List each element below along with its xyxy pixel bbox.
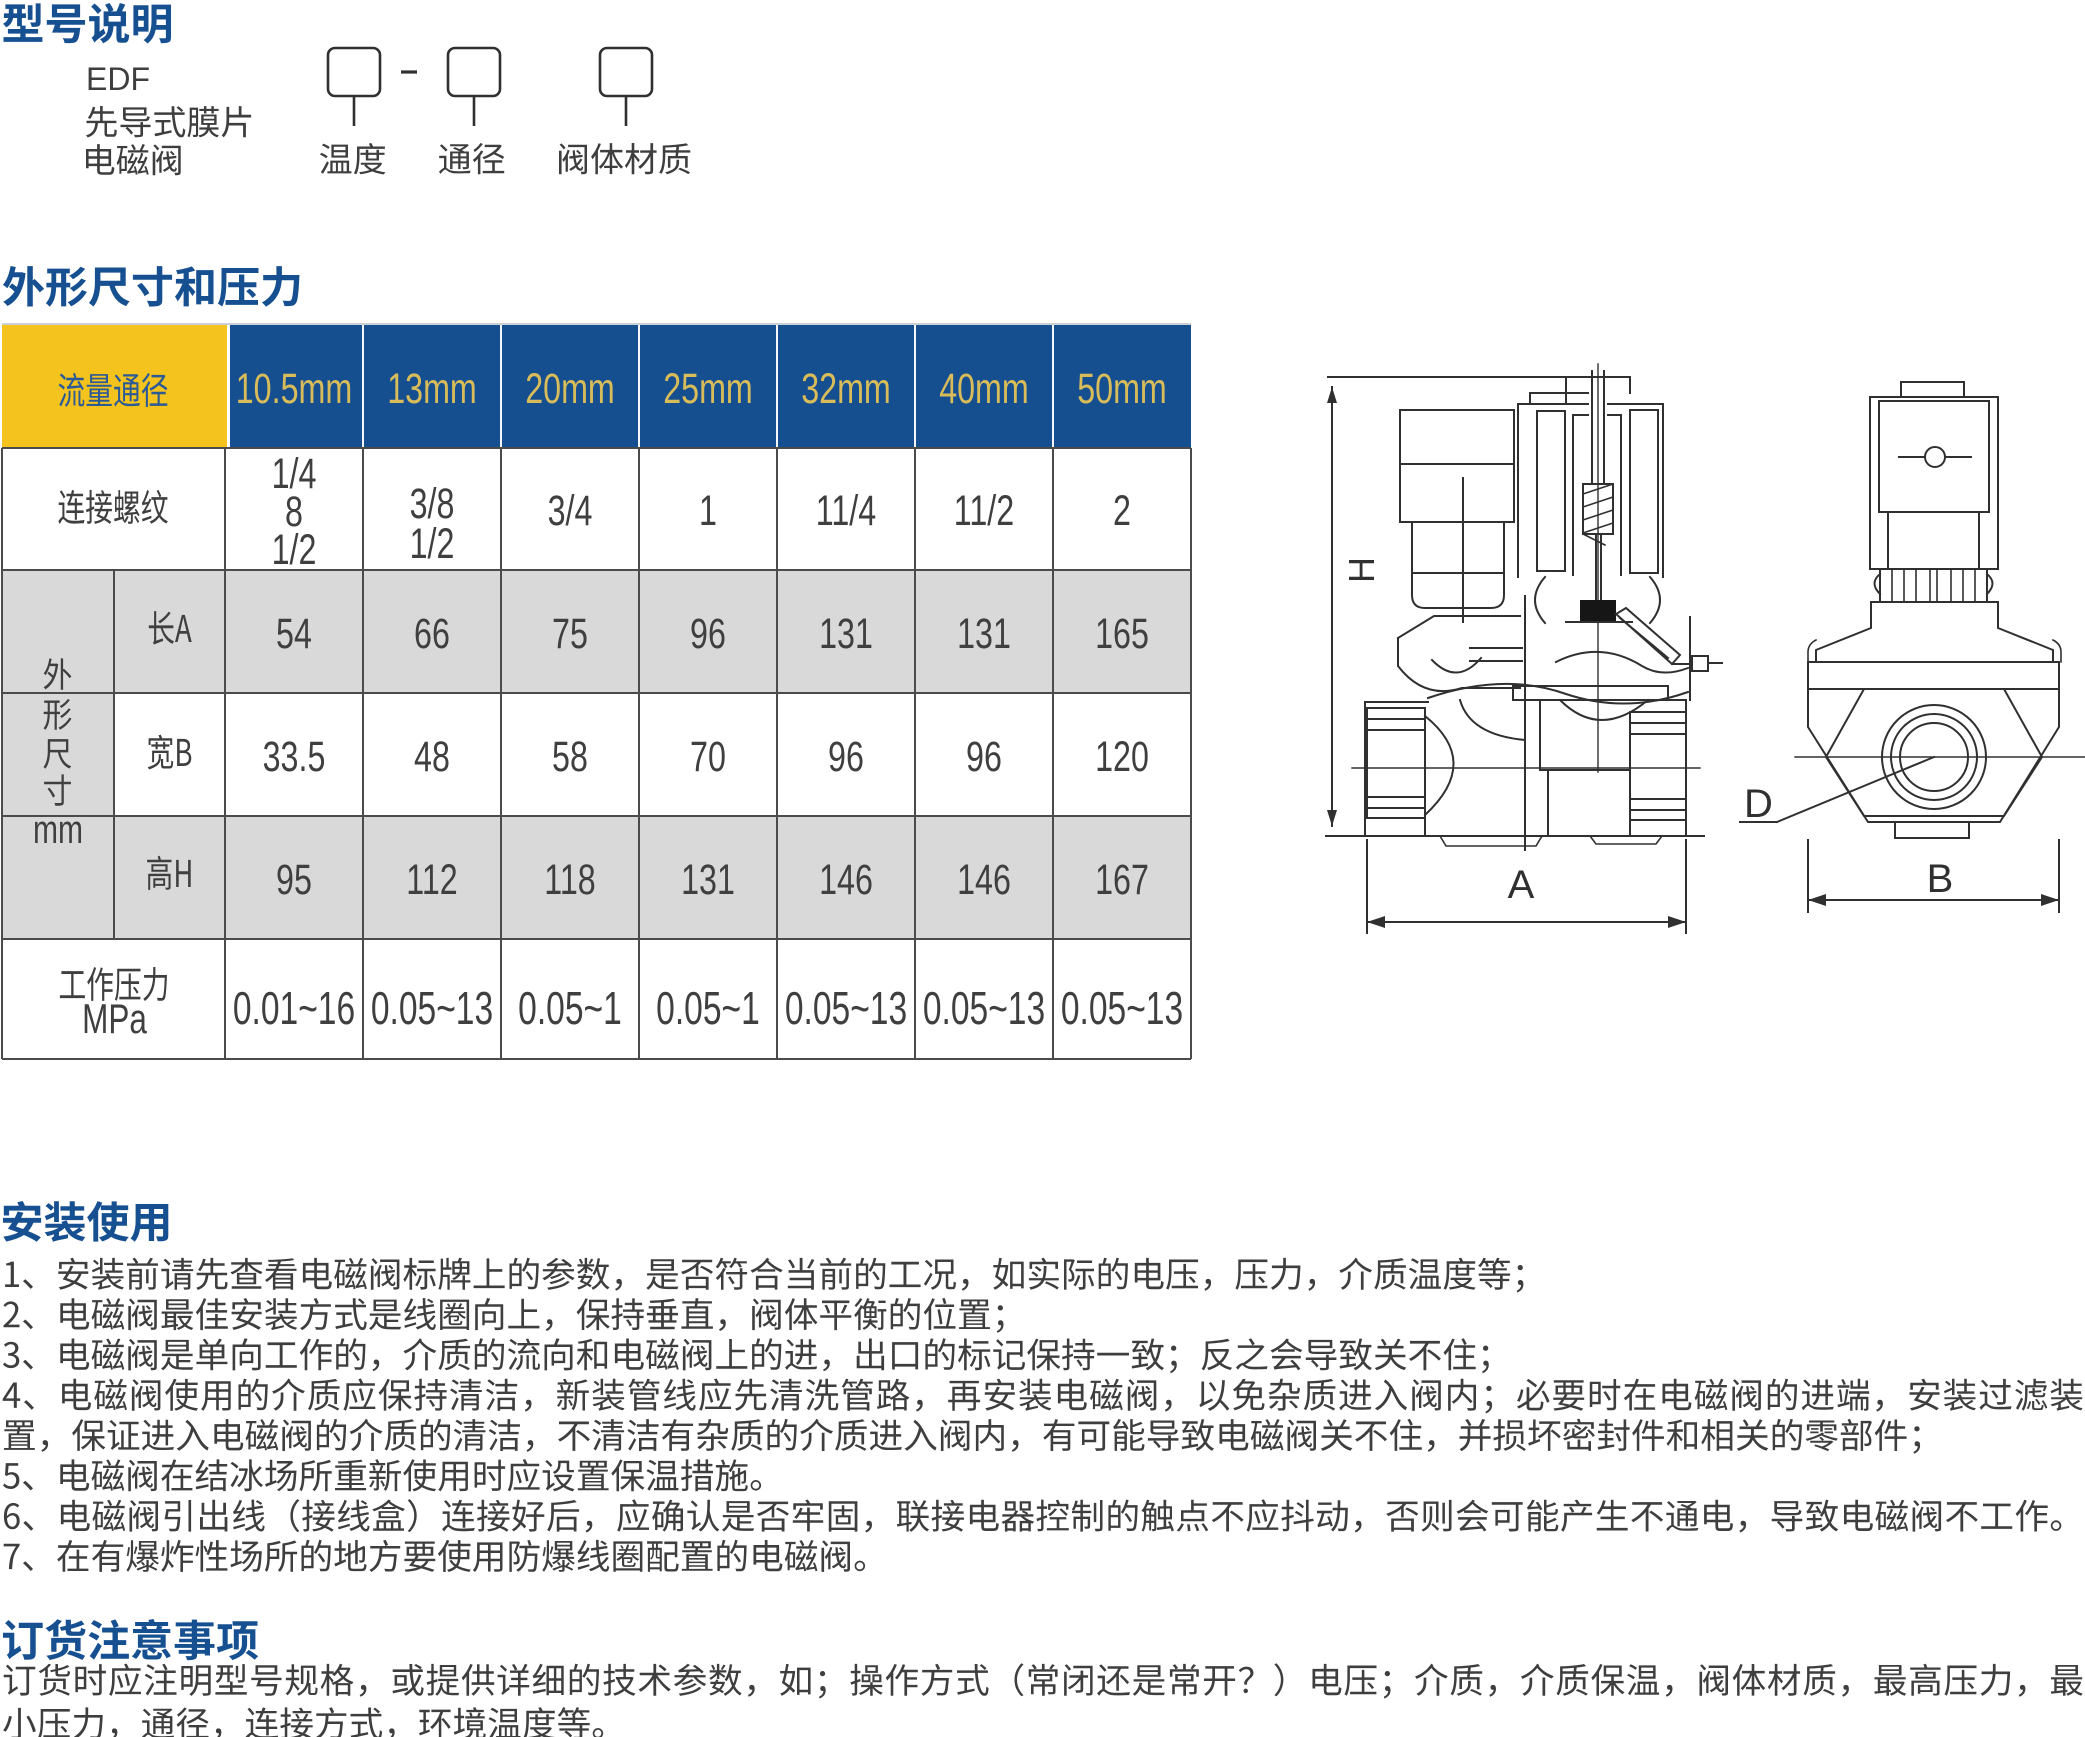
svg-text:120: 120: [1095, 734, 1149, 782]
svg-text:H: H: [1341, 557, 1382, 583]
svg-text:0.05~13: 0.05~13: [1061, 983, 1183, 1034]
svg-text:1/2: 1/2: [272, 527, 317, 575]
svg-text:95: 95: [276, 857, 312, 905]
svg-text:D: D: [1744, 782, 1773, 826]
svg-text:25mm: 25mm: [663, 366, 753, 414]
svg-text:40mm: 40mm: [939, 366, 1029, 414]
svg-text:11/2: 11/2: [954, 488, 1014, 536]
svg-text:B: B: [1927, 857, 1954, 901]
svg-text:0.05~13: 0.05~13: [371, 983, 493, 1034]
svg-text:48: 48: [414, 734, 450, 782]
svg-text:0.01~16: 0.01~16: [233, 983, 355, 1034]
svg-text:10.5mm: 10.5mm: [236, 366, 352, 414]
svg-text:3/4: 3/4: [548, 488, 593, 536]
svg-text:167: 167: [1095, 857, 1149, 905]
svg-text:131: 131: [957, 611, 1011, 659]
svg-text:146: 146: [957, 857, 1011, 905]
svg-text:A: A: [1508, 863, 1535, 907]
svg-text:118: 118: [544, 857, 595, 905]
svg-text:146: 146: [819, 857, 873, 905]
svg-text:EDF: EDF: [86, 61, 150, 97]
svg-text:MPa: MPa: [82, 995, 147, 1043]
svg-text:1: 1: [699, 488, 717, 536]
svg-text:131: 131: [819, 611, 873, 659]
svg-text:96: 96: [966, 734, 1002, 782]
svg-text:1/2: 1/2: [410, 521, 455, 569]
svg-text:2: 2: [1113, 488, 1131, 536]
svg-text:33.5: 33.5: [263, 734, 326, 782]
svg-text:0.05~13: 0.05~13: [923, 983, 1045, 1034]
svg-text:0.05~1: 0.05~1: [656, 983, 760, 1034]
svg-text:165: 165: [1095, 611, 1149, 659]
svg-text:20mm: 20mm: [525, 366, 615, 414]
svg-text:0.05~1: 0.05~1: [518, 983, 622, 1034]
svg-text:32mm: 32mm: [801, 366, 891, 414]
svg-text:54: 54: [276, 611, 312, 659]
svg-text:58: 58: [552, 734, 588, 782]
svg-text:mm: mm: [33, 808, 83, 852]
svg-text:112: 112: [406, 857, 457, 905]
svg-text:11/4: 11/4: [816, 488, 876, 536]
svg-text:131: 131: [681, 857, 735, 905]
svg-text:96: 96: [690, 611, 726, 659]
svg-text:96: 96: [828, 734, 864, 782]
svg-text:50mm: 50mm: [1077, 366, 1167, 414]
svg-text:70: 70: [690, 734, 726, 782]
svg-text:13mm: 13mm: [387, 366, 477, 414]
svg-text:0.05~13: 0.05~13: [785, 983, 907, 1034]
svg-text:66: 66: [414, 611, 450, 659]
svg-text:75: 75: [552, 611, 588, 659]
